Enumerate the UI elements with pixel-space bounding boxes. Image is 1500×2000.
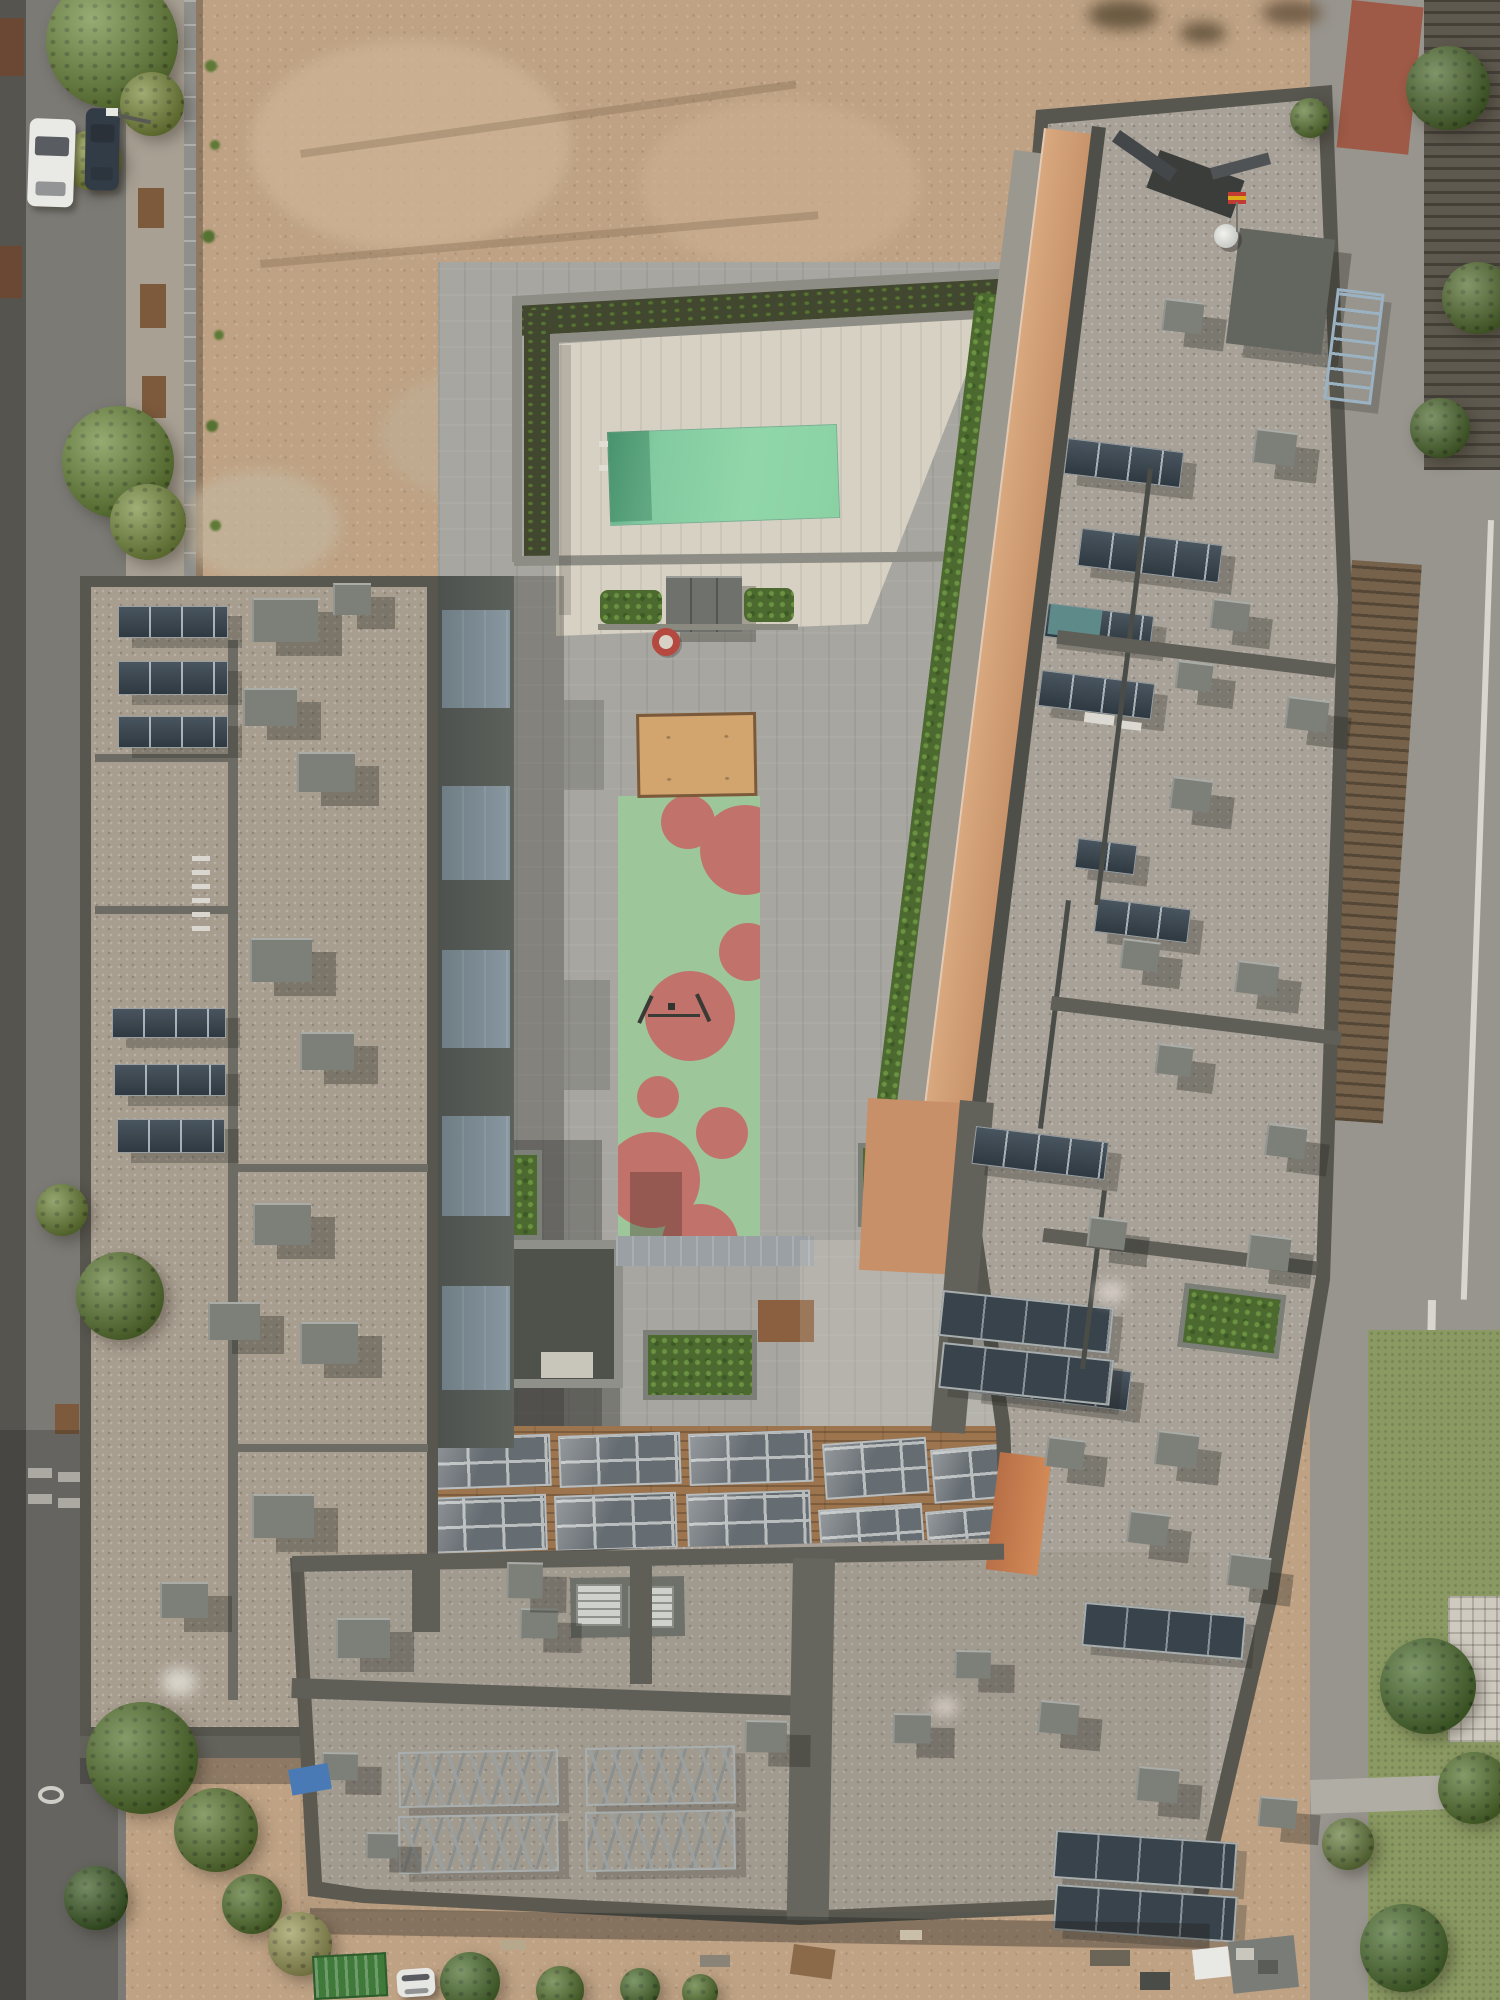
small-white-car bbox=[396, 1967, 436, 1998]
white-car bbox=[27, 118, 76, 208]
tree bbox=[620, 1968, 660, 2000]
truck-cab bbox=[1192, 1946, 1231, 1980]
mass-south-shadow bbox=[310, 1908, 1210, 1950]
dark-car bbox=[85, 108, 120, 191]
tree bbox=[682, 1974, 718, 2000]
tree bbox=[1442, 262, 1500, 334]
tree bbox=[120, 72, 184, 136]
ground-debris bbox=[1140, 1972, 1170, 1990]
tree bbox=[1438, 1752, 1500, 1824]
green-container bbox=[312, 1952, 388, 2000]
truck-load bbox=[1236, 1948, 1254, 1960]
tree bbox=[1322, 1818, 1374, 1870]
aerial-photo-scene bbox=[0, 0, 1500, 2000]
tree bbox=[86, 1702, 198, 1814]
ground-debris bbox=[700, 1955, 730, 1967]
truck-load bbox=[1258, 1960, 1278, 1974]
street-lamp-head bbox=[106, 108, 118, 116]
tree bbox=[536, 1966, 584, 2000]
ground-debris bbox=[900, 1930, 922, 1940]
tree bbox=[440, 1952, 500, 2000]
tree bbox=[1406, 46, 1490, 130]
tree bbox=[1360, 1904, 1448, 1992]
pallet-stack bbox=[790, 1944, 836, 1980]
tree bbox=[1290, 98, 1330, 138]
tree bbox=[1380, 1638, 1476, 1734]
ground-debris bbox=[1090, 1950, 1130, 1966]
tree bbox=[174, 1788, 258, 1872]
tree bbox=[1410, 398, 1470, 458]
tree bbox=[64, 1866, 128, 1930]
blue-tarp bbox=[288, 1763, 332, 1796]
ground-debris bbox=[500, 1940, 526, 1950]
tree bbox=[110, 484, 186, 560]
tree bbox=[36, 1184, 88, 1236]
tree bbox=[76, 1252, 164, 1340]
top-layer bbox=[0, 0, 1500, 2000]
